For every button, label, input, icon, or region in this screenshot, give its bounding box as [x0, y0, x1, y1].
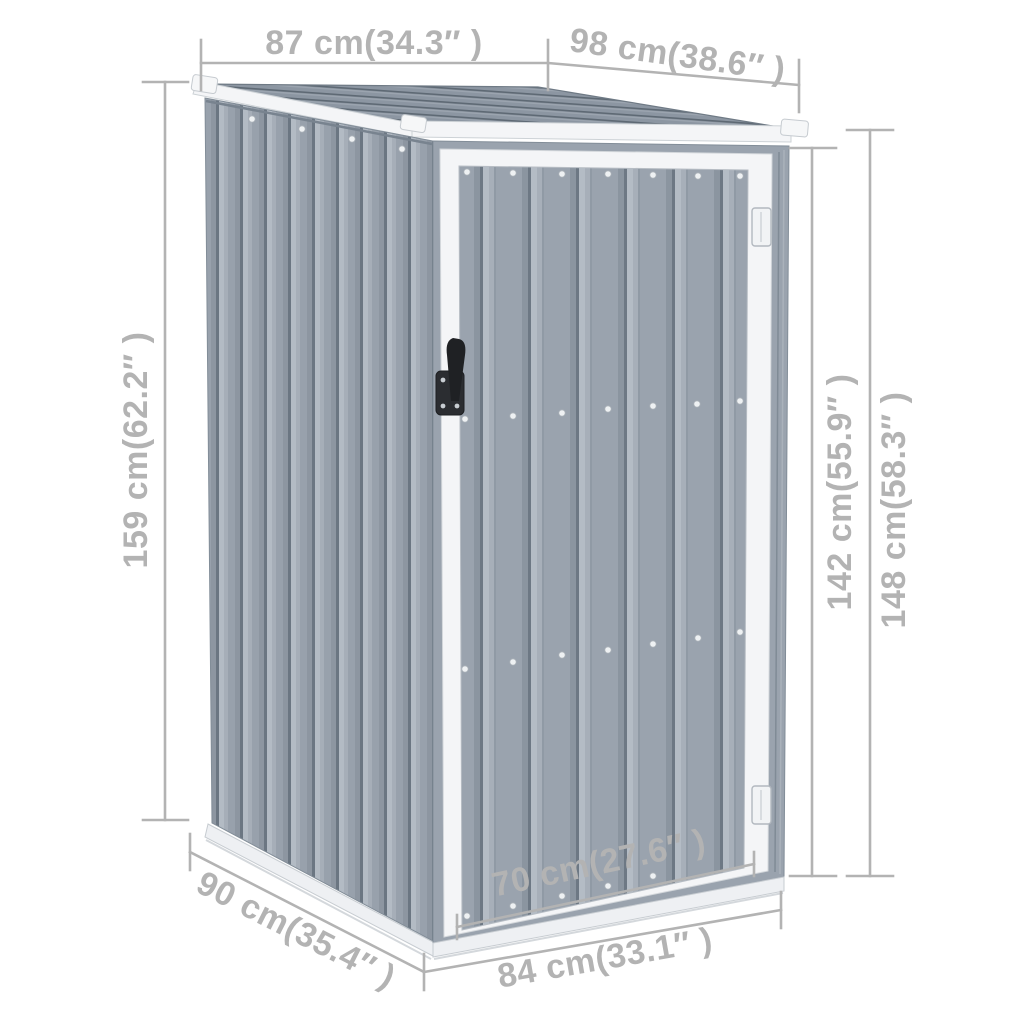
door-panel — [459, 166, 748, 930]
dimension-label-right-height: 148 cm(58.3″ ) — [875, 392, 913, 629]
door-hinge-top — [752, 208, 771, 246]
dimension-label-roof-left-width: 87 cm(34.3″ ) — [265, 24, 482, 62]
door-hinge-bottom — [752, 786, 771, 824]
roof-cap-peak — [191, 74, 218, 94]
dimension-label-door-height: 142 cm(55.9″ ) — [821, 374, 859, 611]
side-wall-panel — [205, 98, 433, 941]
dimension-door-height: 142 cm(55.9″ ) — [790, 148, 859, 876]
dimension-left-height: 159 cm(62.2″ ) — [117, 82, 188, 820]
dimension-label-left-height: 159 cm(62.2″ ) — [117, 332, 155, 569]
shed-illustration — [191, 74, 809, 959]
dimension-roof-left-width: 87 cm(34.3″ ) — [201, 24, 548, 90]
dimension-label-roof-right-width: 98 cm(38.6″ ) — [567, 21, 788, 89]
shed-front-wall — [433, 141, 789, 959]
roof-cap-right — [780, 119, 808, 137]
shed-dimension-diagram: 87 cm(34.3″ ) 98 cm(38.6″ ) 159 cm(62.2″… — [0, 0, 1024, 1024]
roof-cap-middle — [400, 114, 427, 133]
product-diagram: 87 cm(34.3″ ) 98 cm(38.6″ ) 159 cm(62.2″… — [0, 0, 1024, 1024]
shed-side-wall — [205, 98, 433, 959]
